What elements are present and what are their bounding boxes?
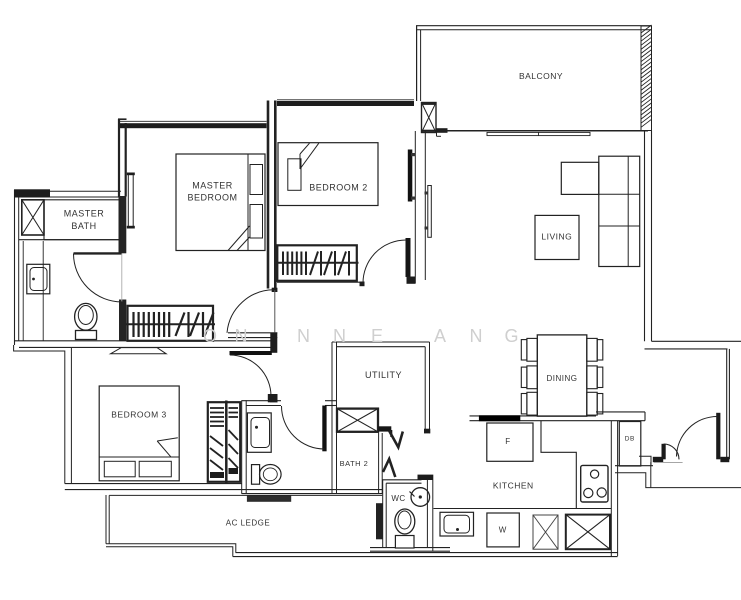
svg-text:KITCHEN: KITCHEN [493, 480, 534, 490]
svg-text:MASTER: MASTER [64, 209, 105, 219]
svg-text:N: N [333, 326, 346, 346]
svg-text:DB: DB [625, 436, 635, 443]
svg-text:N: N [235, 326, 248, 346]
svg-text:W: W [499, 526, 507, 535]
svg-text:LIVING: LIVING [541, 232, 572, 242]
svg-text:MASTER: MASTER [192, 181, 233, 191]
svg-text:BEDROOM 2: BEDROOM 2 [309, 183, 368, 193]
svg-text:O: O [203, 326, 217, 346]
svg-text:BEDROOM 3: BEDROOM 3 [111, 410, 167, 420]
svg-text:BALCONY: BALCONY [519, 71, 563, 81]
svg-text:DINING: DINING [547, 374, 578, 383]
svg-text:N: N [470, 326, 483, 346]
svg-text:G: G [504, 326, 518, 346]
svg-text:N: N [297, 326, 310, 346]
svg-text:UTILITY: UTILITY [365, 370, 402, 380]
svg-text:AC LEDGE: AC LEDGE [226, 519, 270, 528]
svg-text:BATH: BATH [71, 221, 96, 231]
svg-text:E: E [371, 326, 383, 346]
svg-text:F: F [505, 437, 510, 446]
svg-text:WC: WC [391, 494, 405, 503]
svg-text:BEDROOM: BEDROOM [187, 193, 237, 203]
svg-text:BATH 2: BATH 2 [340, 459, 369, 468]
svg-text:A: A [434, 326, 446, 346]
